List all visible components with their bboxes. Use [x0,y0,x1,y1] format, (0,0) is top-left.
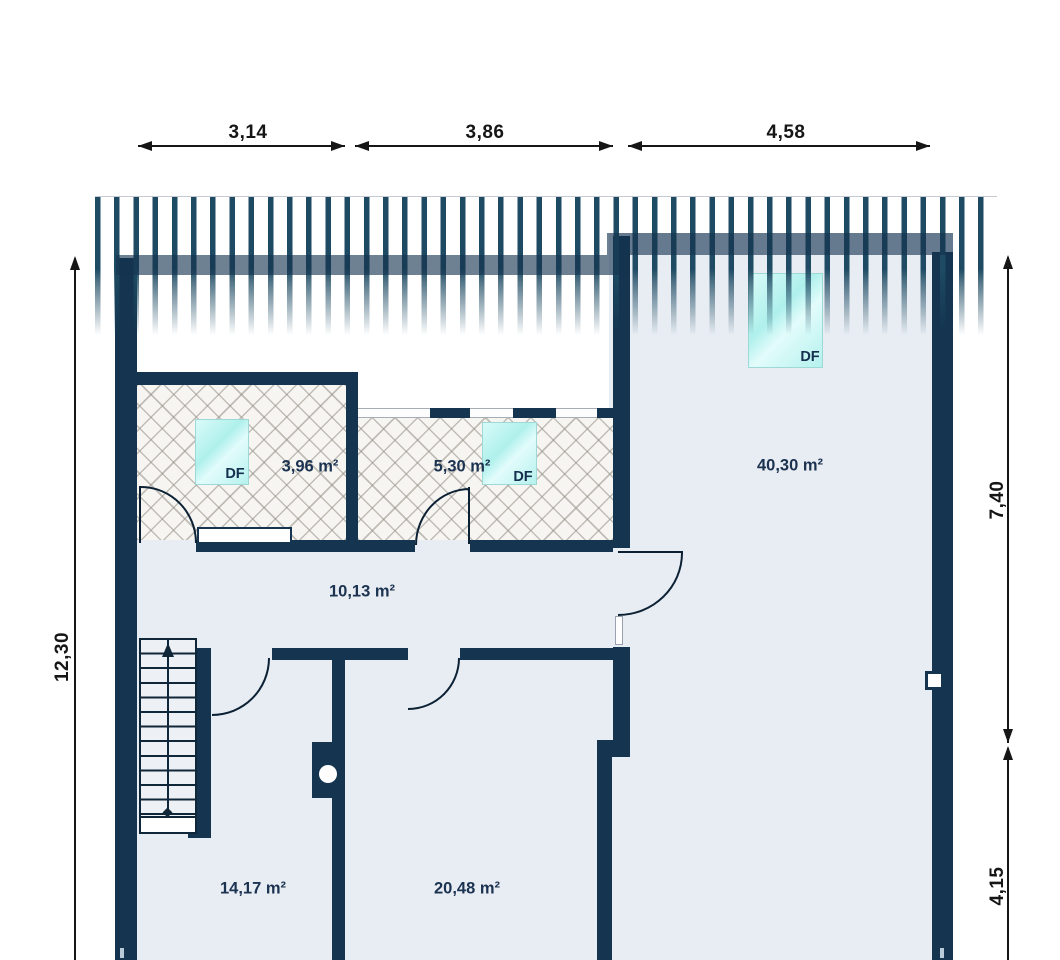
dimension-value: 12,30 [52,632,74,682]
arrow-up-icon [1003,255,1013,269]
knee-wall-dashed [358,408,613,418]
wall-upper-rooms-bottom-b [470,540,613,552]
door-leaf-room530 [468,487,470,544]
wall-room396-top [137,372,358,385]
wall-thickness-mark [940,948,944,958]
skylight-label-room530: DF [513,469,532,485]
wall-room396-right [346,374,358,552]
floor-plan: 3,14 3,86 4,58 12,30 7,40 4,15 3,96 m² 5… [0,0,1060,960]
wall-niche [197,527,292,544]
dimension-value: 7,40 [987,481,1009,520]
knee-wall-dash [430,408,470,418]
room-area-label-10-13: 10,13 m² [329,583,395,602]
knee-wall-dash [597,408,613,418]
room-area-label-3-96: 3,96 m² [282,458,339,477]
skylight-label-room396: DF [225,466,244,482]
dimension-value: 4,58 [767,122,806,144]
room-area-label-5-30: 5,30 m² [434,458,491,477]
dimension-line [138,145,345,147]
stairs-direction-arrow [162,643,174,657]
knee-wall-dash [513,408,556,418]
room-area-label-14-17: 14,17 m² [220,880,286,899]
dimension-line [1007,748,1009,960]
wall-band-top-left-section [116,255,630,275]
arrow-left-icon [628,141,642,151]
wall-bigroom-left-step [597,740,630,757]
wall-thickness-mark [120,948,124,958]
dimension-value: 3,14 [229,122,268,144]
right-wall-box [925,671,944,690]
arrow-up-icon [70,256,80,270]
dimension-value: 4,15 [987,867,1009,906]
arrow-left-icon [138,141,152,151]
door-leaf-bigroom [618,551,683,553]
room-20-48-floor-sliver [597,660,613,740]
wall-bigroom-left-lower [613,647,630,740]
stairs-landing [141,816,195,832]
skylight-label-bigroom: DF [800,349,819,365]
dimension-line [355,145,613,147]
wall-band-top-bigroom [607,233,953,255]
dimension-value: 3,86 [466,122,505,144]
wall-exterior-right [932,252,953,960]
door-leaf-room396 [139,486,141,543]
staircase [139,638,197,834]
wall-bigroom-left-bottom [597,757,612,960]
chimney-flue-circle [319,765,337,783]
wall-stairs-stub [196,648,211,838]
room-area-label-40-30: 40,30 m² [757,457,823,476]
arrow-right-icon [599,141,613,151]
wall-exterior-left [115,258,137,960]
arrow-right-icon [916,141,930,151]
arrow-right-icon [331,141,345,151]
arrow-down-icon [1003,729,1013,743]
arrow-up-icon [1003,746,1013,760]
dimension-line [74,258,76,960]
dimension-line [628,145,930,147]
room-area-label-20-48: 20,48 m² [434,880,500,899]
wall-partition-bottom-rooms [332,649,345,960]
wall-hallway-bottom-b [460,648,613,660]
door-jamb-bigroom [615,616,623,645]
stairs-walk-line [167,640,169,832]
arrow-left-icon [355,141,369,151]
